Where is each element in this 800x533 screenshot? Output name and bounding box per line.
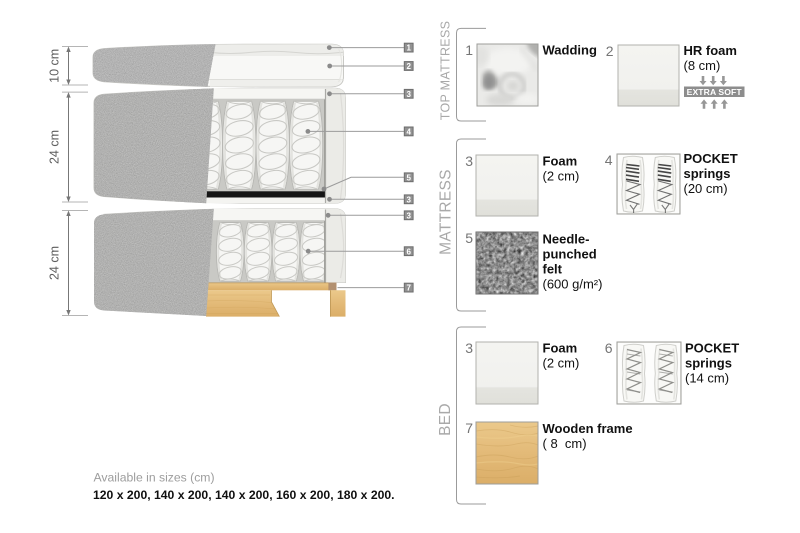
svg-text:(600 g/m²): (600 g/m²) bbox=[543, 277, 603, 292]
svg-text:POCKET: POCKET bbox=[684, 151, 738, 166]
svg-text:springs: springs bbox=[684, 166, 731, 181]
svg-text:(20 cm): (20 cm) bbox=[684, 181, 728, 196]
svg-text:4: 4 bbox=[605, 152, 613, 168]
svg-text:3: 3 bbox=[406, 211, 411, 220]
svg-text:( 8 cm): ( 8 cm) bbox=[543, 436, 587, 451]
svg-text:2: 2 bbox=[606, 43, 614, 59]
svg-text:10 cm: 10 cm bbox=[47, 49, 61, 83]
svg-text:7: 7 bbox=[406, 284, 411, 293]
svg-text:3: 3 bbox=[406, 195, 411, 204]
svg-text:EXTRA SOFT: EXTRA SOFT bbox=[687, 87, 743, 97]
svg-text:3: 3 bbox=[406, 90, 411, 99]
svg-text:6: 6 bbox=[605, 340, 613, 356]
svg-text:24 cm: 24 cm bbox=[47, 246, 61, 280]
svg-text:6: 6 bbox=[406, 247, 411, 256]
svg-text:Wadding: Wadding bbox=[543, 43, 597, 58]
svg-text:BED: BED bbox=[437, 403, 454, 436]
svg-text:Foam: Foam bbox=[543, 154, 578, 169]
svg-text:7: 7 bbox=[465, 420, 473, 436]
svg-text:5: 5 bbox=[465, 230, 473, 246]
svg-text:(14 cm): (14 cm) bbox=[685, 371, 729, 386]
svg-text:4: 4 bbox=[406, 128, 411, 137]
svg-text:(8 cm): (8 cm) bbox=[684, 58, 721, 73]
svg-text:1: 1 bbox=[406, 44, 411, 53]
svg-text:TOP MATTRESS: TOP MATTRESS bbox=[438, 21, 452, 120]
svg-text:Available in sizes (cm): Available in sizes (cm) bbox=[94, 471, 215, 485]
svg-text:punched: punched bbox=[543, 247, 597, 262]
svg-text:(2 cm): (2 cm) bbox=[543, 356, 580, 371]
svg-text:HR foam: HR foam bbox=[684, 43, 737, 58]
svg-text:felt: felt bbox=[543, 262, 563, 277]
svg-text:3: 3 bbox=[465, 340, 473, 356]
svg-text:Foam: Foam bbox=[543, 341, 578, 356]
svg-text:springs: springs bbox=[685, 356, 732, 371]
svg-text:(2 cm): (2 cm) bbox=[543, 169, 580, 184]
svg-text:MATTRESS: MATTRESS bbox=[438, 169, 455, 255]
svg-text:120 x 200, 140 x 200, 140 x 20: 120 x 200, 140 x 200, 140 x 200, 160 x 2… bbox=[93, 488, 395, 502]
svg-text:5: 5 bbox=[406, 173, 411, 182]
svg-text:Wooden frame: Wooden frame bbox=[543, 421, 633, 436]
svg-text:Needle-: Needle- bbox=[543, 232, 590, 247]
svg-text:2: 2 bbox=[406, 62, 411, 71]
svg-text:1: 1 bbox=[465, 42, 473, 58]
svg-text:POCKET: POCKET bbox=[685, 341, 739, 356]
svg-text:24 cm: 24 cm bbox=[47, 130, 61, 164]
svg-text:3: 3 bbox=[465, 153, 473, 169]
